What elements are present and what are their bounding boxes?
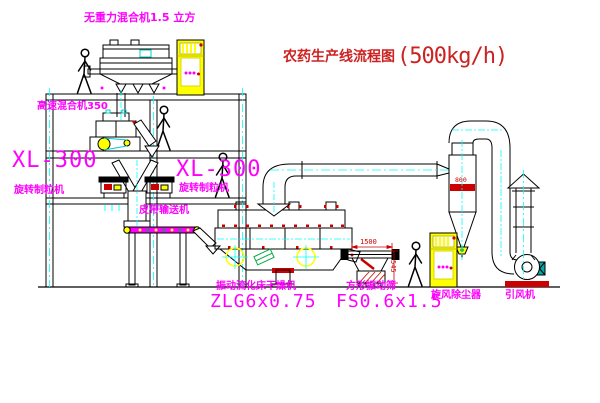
floor-slab-roof	[46, 94, 246, 100]
fluid-bed-dryer	[215, 202, 360, 287]
label-sieve-model: FS0.6x1.5	[336, 293, 443, 311]
page-title: 农药生产线流程图 (500kg/h)	[283, 44, 507, 69]
induced-draft-fan	[505, 255, 549, 288]
label-high-speed-mixer: 高速混合机350	[37, 102, 108, 112]
label-granulator-left-name: 旋转制粒机	[14, 186, 64, 196]
label-granulator-mid-model: XL-300	[176, 159, 261, 181]
title-text: 农药生产线流程图	[283, 46, 395, 66]
label-fan: 引风机	[505, 291, 535, 301]
label-gravity-mixer: 无重力混合机1.5 立方	[84, 12, 195, 23]
flow-diagram: 农药生产线流程图 (500kg/h) 无重力混合机1.5 立方 高速混合机350…	[0, 0, 600, 403]
control-cabinet-1	[177, 40, 204, 95]
belt-discharge-chute	[193, 228, 220, 254]
label-granulator-left-model: XL-300	[12, 150, 97, 172]
control-cabinet-2	[430, 233, 457, 287]
belt-conveyor	[124, 227, 200, 287]
green-plate	[254, 249, 274, 265]
label-granulator-mid-name: 旋转制粒机	[179, 184, 229, 194]
label-cyclone: 旋风除尘器	[431, 291, 481, 301]
label-dryer-model: ZLG6x0.75	[210, 293, 317, 311]
title-capacity: (500kg/h)	[397, 44, 507, 69]
worker-figure-ground	[409, 242, 423, 286]
dimension-cyclone-dia: 800	[455, 177, 467, 184]
label-belt-conveyor: 皮带输送机	[139, 206, 189, 216]
granulator-left	[99, 177, 128, 211]
exhaust-duct	[258, 161, 449, 216]
high-speed-mixer	[90, 110, 159, 157]
worker-figure-floor2	[157, 106, 171, 150]
dimension-sieve-height: 545	[389, 260, 396, 273]
dimension-sieve-width: 1500	[360, 239, 377, 246]
